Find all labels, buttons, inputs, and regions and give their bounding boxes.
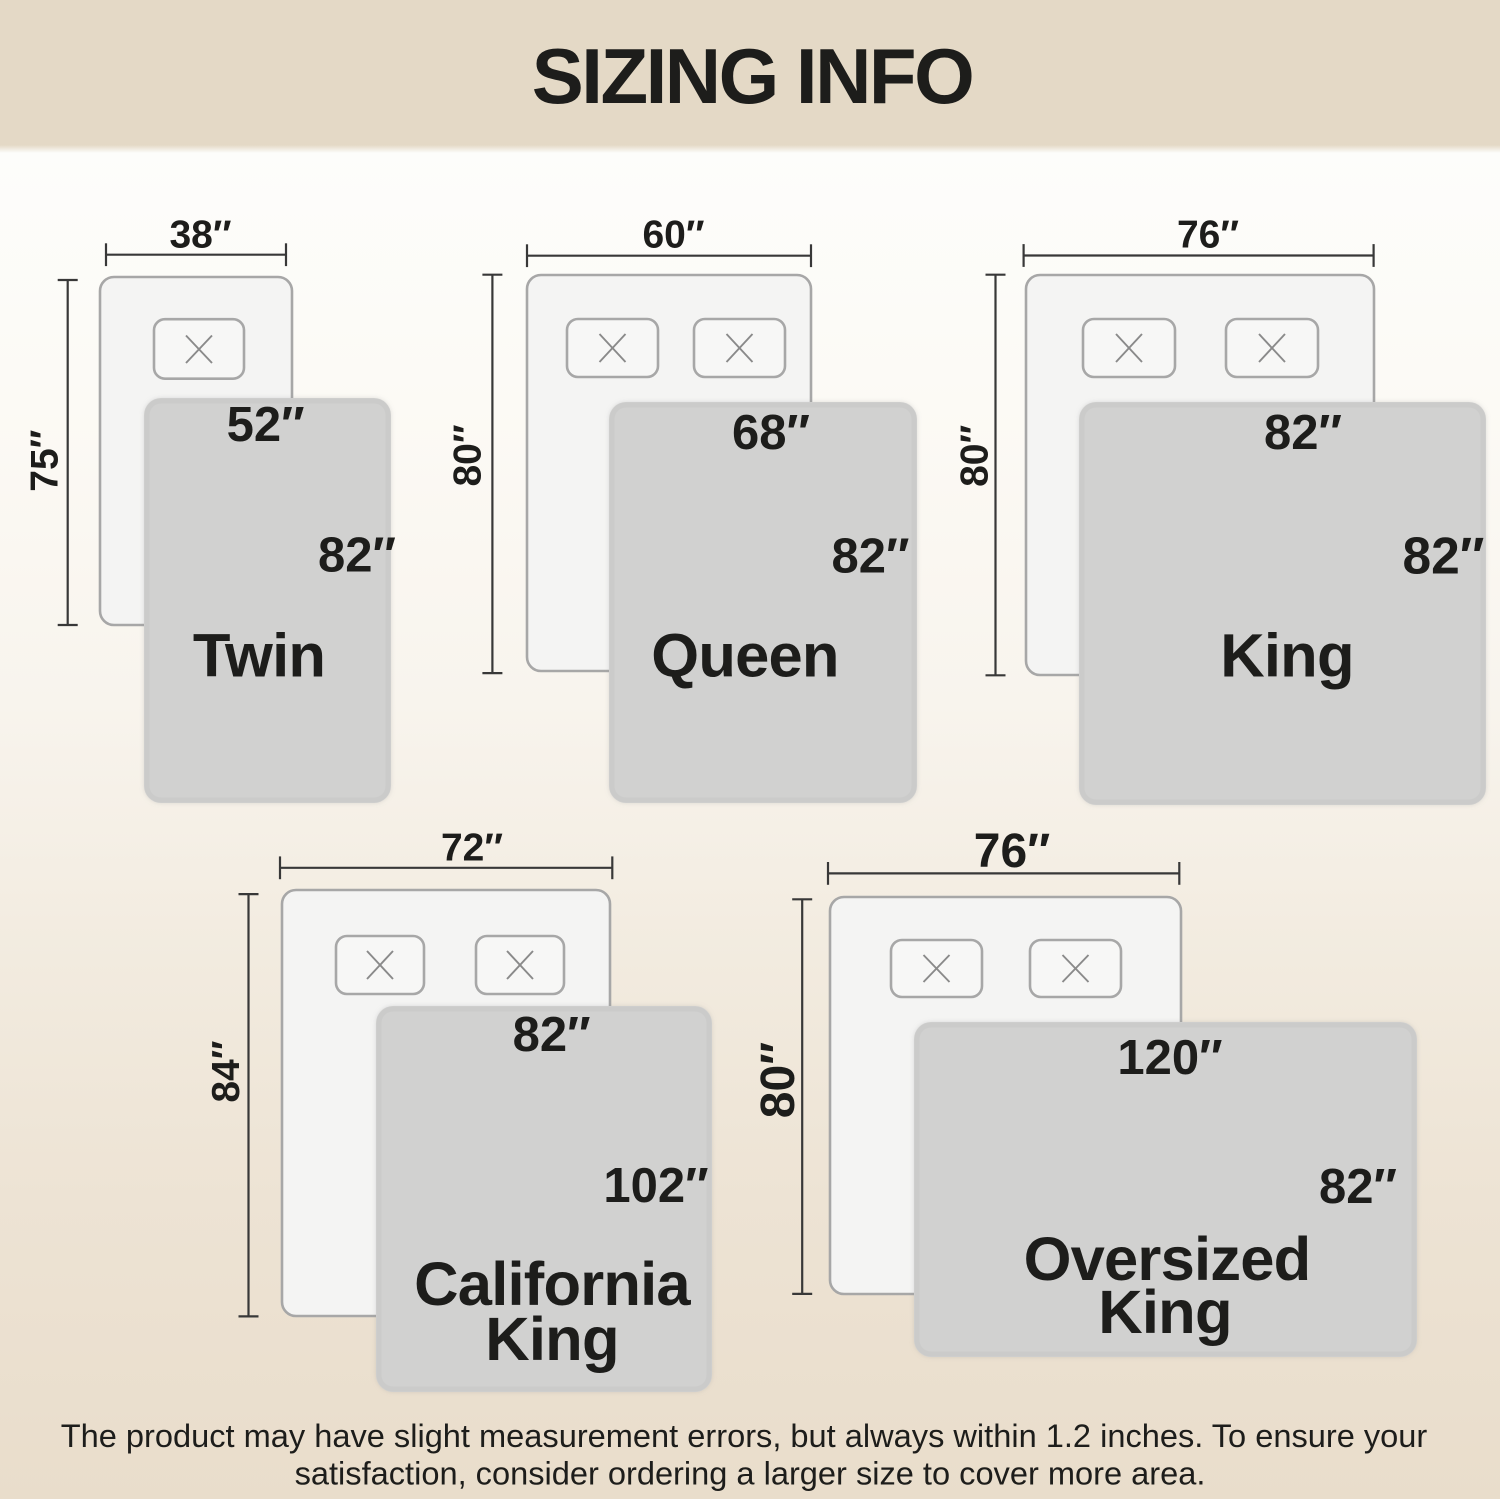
svg-text:72″: 72″ [441,827,503,870]
svg-text:82″: 82″ [1319,1160,1397,1214]
svg-text:Twin: Twin [193,622,325,691]
svg-text:Queen: Queen [651,622,838,691]
svg-text:82″: 82″ [318,528,396,582]
svg-text:80″: 80″ [752,1042,805,1118]
svg-text:80″: 80″ [953,425,996,487]
svg-text:120″: 120″ [1117,1031,1222,1085]
svg-text:King: King [1098,1278,1231,1347]
svg-text:102″: 102″ [603,1159,708,1213]
svg-text:SIZING INFO: SIZING INFO [532,32,973,120]
svg-text:82″: 82″ [1403,527,1485,585]
svg-text:82″: 82″ [513,1008,591,1062]
svg-text:52″: 52″ [227,398,305,452]
svg-text:The product may have slight me: The product may have slight measurement … [61,1417,1428,1454]
svg-text:84″: 84″ [205,1041,248,1103]
svg-text:60″: 60″ [642,213,704,256]
svg-text:68″: 68″ [732,406,810,460]
svg-text:satisfaction, consider orderin: satisfaction, consider ordering a larger… [295,1455,1206,1492]
svg-text:King: King [1220,622,1353,691]
svg-text:82″: 82″ [1264,406,1342,460]
svg-text:75″: 75″ [23,430,66,492]
svg-text:76″: 76″ [974,825,1050,878]
svg-text:76″: 76″ [1177,213,1239,256]
svg-text:King: King [485,1305,618,1374]
svg-text:38″: 38″ [169,214,231,257]
svg-text:82″: 82″ [832,530,910,584]
svg-text:80″: 80″ [447,424,490,486]
